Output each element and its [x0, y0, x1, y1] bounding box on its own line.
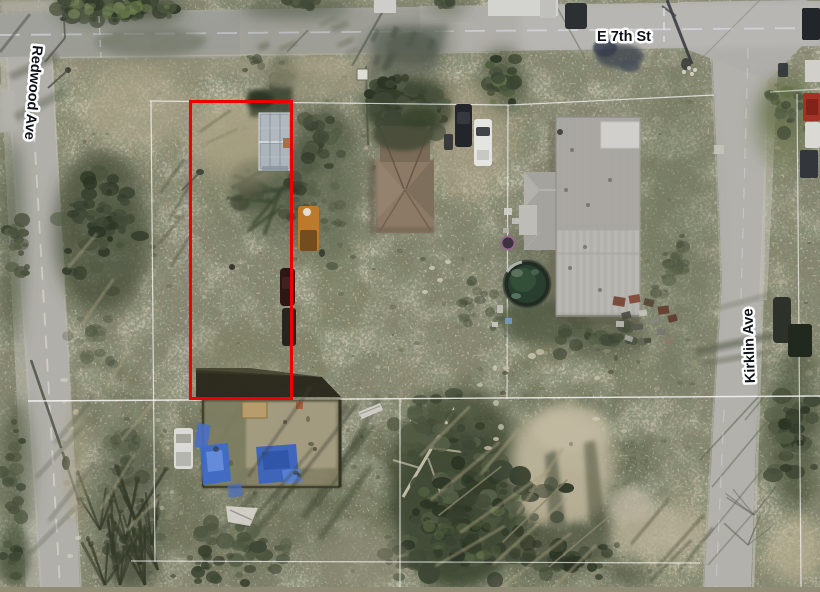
- svg-text:E 7th St: E 7th St: [597, 29, 651, 45]
- svg-text:Kirklin Ave: Kirklin Ave: [740, 308, 759, 383]
